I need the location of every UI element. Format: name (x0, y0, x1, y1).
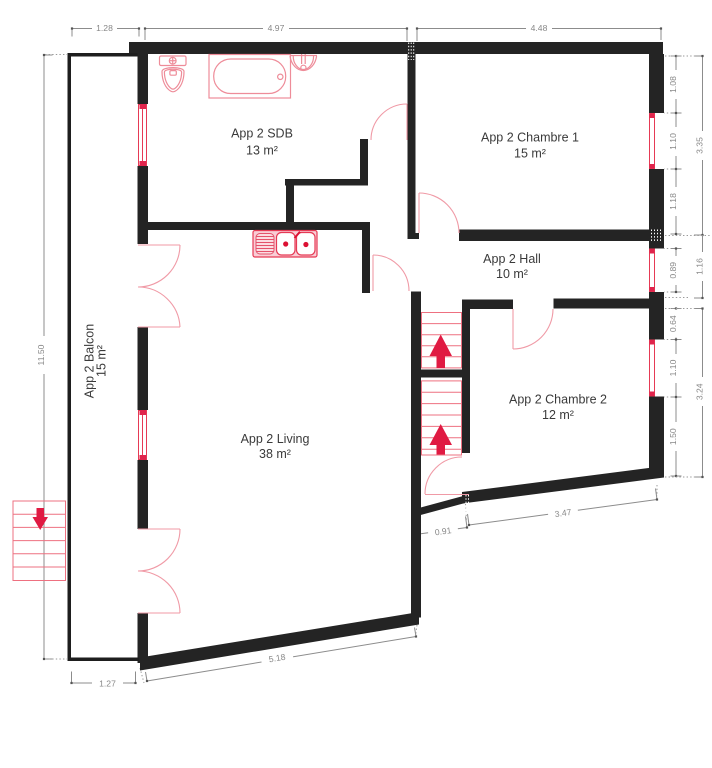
svg-text:4.97: 4.97 (268, 23, 285, 33)
svg-text:App 2 Living: App 2 Living (241, 432, 310, 446)
svg-text:12 m²: 12 m² (542, 408, 574, 422)
svg-text:15 m²: 15 m² (514, 147, 546, 161)
svg-text:App 2 Chambre 2: App 2 Chambre 2 (509, 393, 607, 407)
svg-text:0.89: 0.89 (668, 262, 678, 279)
svg-text:11.50: 11.50 (36, 344, 46, 365)
svg-text:4.48: 4.48 (531, 23, 548, 33)
svg-text:0.64: 0.64 (668, 315, 678, 332)
svg-text:1.18: 1.18 (668, 193, 678, 210)
svg-text:1.08: 1.08 (668, 76, 678, 93)
svg-text:1.10: 1.10 (668, 133, 678, 150)
svg-text:38 m²: 38 m² (259, 447, 291, 461)
svg-text:1.28: 1.28 (96, 23, 113, 33)
svg-text:13 m²: 13 m² (246, 144, 278, 158)
svg-text:1.10: 1.10 (668, 359, 678, 376)
svg-text:App 2 Hall: App 2 Hall (483, 252, 541, 266)
svg-text:App 2 SDB: App 2 SDB (231, 127, 293, 141)
svg-text:1.50: 1.50 (668, 428, 678, 445)
svg-text:15 m²: 15 m² (95, 345, 109, 377)
svg-text:3.24: 3.24 (695, 383, 705, 400)
svg-text:1.27: 1.27 (99, 679, 116, 689)
svg-text:3.35: 3.35 (695, 137, 705, 154)
svg-text:1.16: 1.16 (695, 258, 705, 275)
svg-text:App 2 Chambre 1: App 2 Chambre 1 (481, 131, 579, 145)
svg-text:10 m²: 10 m² (496, 267, 528, 281)
